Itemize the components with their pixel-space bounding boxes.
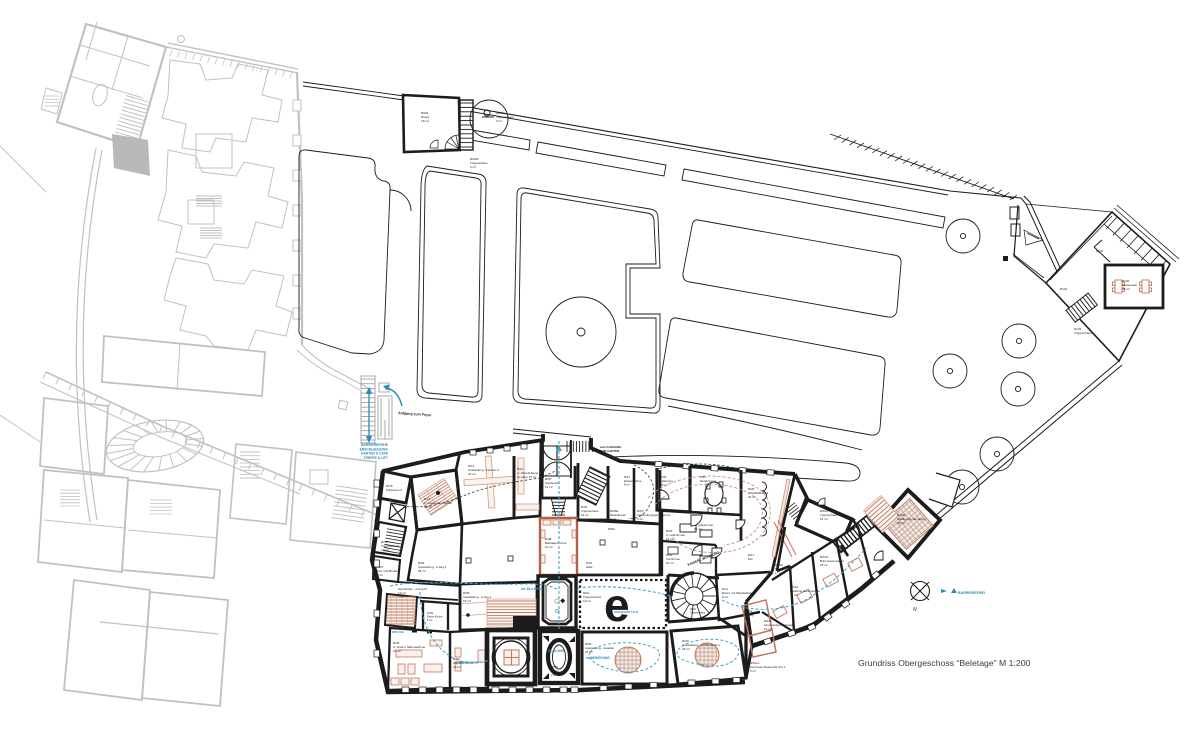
svg-text:39 m²: 39 m² xyxy=(1122,287,1130,291)
svg-text:3 m²: 3 m² xyxy=(496,119,502,123)
svg-text:Musikzimmer: Musikzimmer xyxy=(700,479,717,483)
svg-text:Flur: Flur xyxy=(748,557,753,561)
svg-text:6 m²: 6 m² xyxy=(722,595,728,599)
svg-text:R101: R101 xyxy=(1060,287,1068,291)
svg-text:ORCHESTER TALIS: ORCHESTER TALIS xyxy=(614,610,639,614)
svg-text:7 m²: 7 m² xyxy=(551,673,557,677)
svg-text:im ALLWEG: im ALLWEG xyxy=(521,587,543,591)
svg-text:48 m²: 48 m² xyxy=(897,521,905,525)
svg-text:Grundriss Obergeschoss “Beleta: Grundriss Obergeschoss “Beletage” M 1:20… xyxy=(858,658,1031,668)
svg-text:R/19: R/19 xyxy=(690,607,696,611)
svg-text:17 m²: 17 m² xyxy=(775,571,783,575)
svg-text:18 m²: 18 m² xyxy=(463,599,471,603)
svg-text:5/34e: 5/34e xyxy=(427,611,434,615)
svg-text:10 m²: 10 m² xyxy=(381,548,389,552)
svg-text:3 m²: 3 m² xyxy=(470,165,476,169)
svg-text:4 m²: 4 m² xyxy=(377,573,383,577)
svg-text:12 m²: 12 m² xyxy=(764,627,772,631)
svg-text:an oben 10 m²: an oben 10 m² xyxy=(517,475,536,479)
svg-text:18 m²: 18 m² xyxy=(790,593,798,597)
svg-text:Fahrraum 2: Fahrraum 2 xyxy=(386,488,402,492)
svg-text:24 m²: 24 m² xyxy=(666,537,674,541)
svg-text:R104: R104 xyxy=(1096,249,1104,253)
svg-text:M 2050 2OG: M 2050 2OG xyxy=(389,630,404,634)
svg-text:20 m²: 20 m² xyxy=(666,561,674,565)
svg-text:18 m²: 18 m² xyxy=(421,119,429,123)
svg-text:24 m²: 24 m² xyxy=(393,649,401,653)
svg-text:Treppenhaus: Treppenhaus xyxy=(1074,331,1092,335)
svg-text:16 m²: 16 m² xyxy=(453,665,461,669)
svg-text:10 m²: 10 m² xyxy=(545,545,553,549)
svg-text:23 m²: 23 m² xyxy=(468,472,476,476)
svg-text:14 m²: 14 m² xyxy=(820,517,828,521)
svg-text:3 m²: 3 m² xyxy=(744,617,750,621)
svg-text:R/05a: R/05a xyxy=(608,527,615,531)
svg-text:26 m²: 26 m² xyxy=(682,647,690,651)
svg-text:TREPPE & LIFT: TREPPE & LIFT xyxy=(364,456,388,460)
svg-text:Halle: Halle xyxy=(586,565,593,569)
svg-text:GL ACHSE: GL ACHSE xyxy=(548,649,564,653)
svg-text:BARRIEREFREI: BARRIEREFREI xyxy=(958,591,985,595)
svg-text:4 m²: 4 m² xyxy=(637,517,643,521)
svg-text:A: Majolikzimmer: A: Majolikzimmer xyxy=(455,660,481,664)
svg-text:Treppenhaus: Treppenhaus xyxy=(690,611,706,615)
svg-text:Kleine Küche: Kleine Küche xyxy=(427,615,443,619)
svg-text:5 m²: 5 m² xyxy=(427,618,432,622)
svg-text:18 m²: 18 m² xyxy=(820,563,828,567)
svg-text:e: e xyxy=(604,579,630,631)
svg-text:5 m²: 5 m² xyxy=(750,669,756,673)
svg-text:ZUM GARTEN: ZUM GARTEN xyxy=(600,449,619,453)
svg-text:11 m²: 11 m² xyxy=(545,485,553,489)
svg-text:8 m²: 8 m² xyxy=(624,483,630,487)
svg-text:16 m²: 16 m² xyxy=(581,513,589,517)
svg-text:N: N xyxy=(913,607,917,613)
svg-text:Intarsia: Intarsia xyxy=(502,642,511,646)
svg-text:10 m²: 10 m² xyxy=(583,599,591,603)
svg-text:95 m²: 95 m² xyxy=(418,569,426,573)
